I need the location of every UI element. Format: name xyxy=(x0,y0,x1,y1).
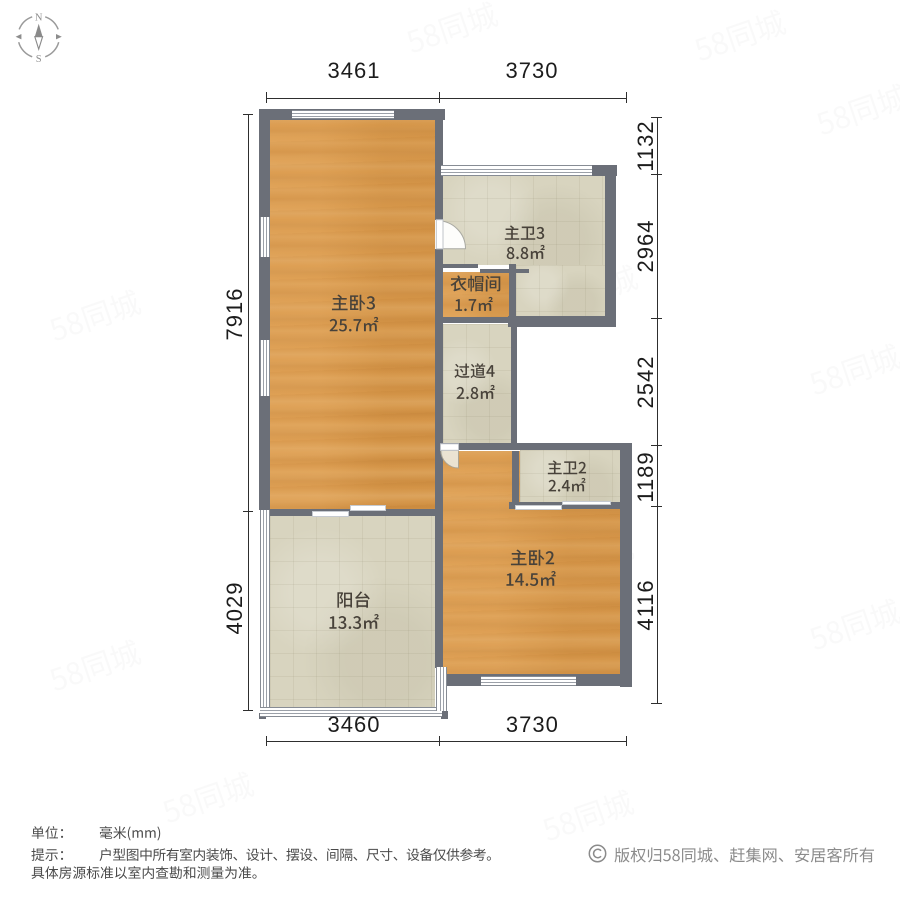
svg-text:S: S xyxy=(36,54,42,65)
svg-text:N: N xyxy=(35,13,43,24)
